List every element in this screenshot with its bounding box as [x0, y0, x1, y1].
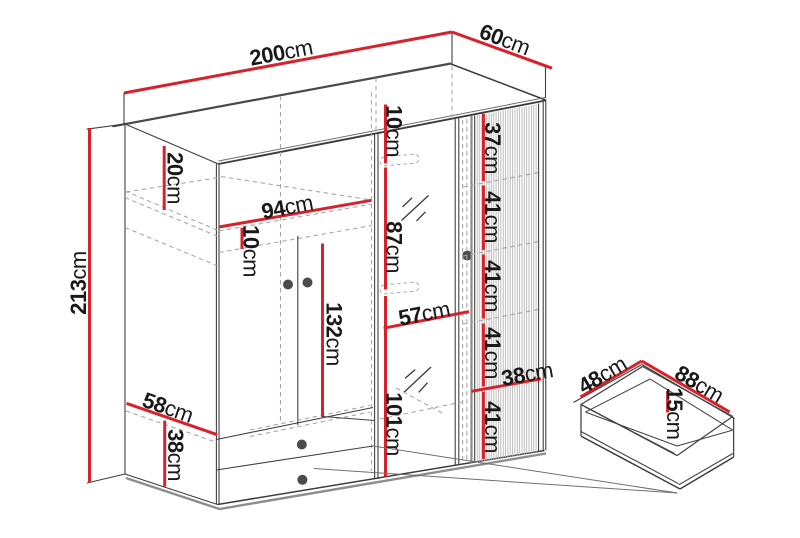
svg-text:41cm: 41cm	[480, 260, 505, 312]
svg-text:38cm: 38cm	[164, 429, 189, 481]
svg-text:37cm: 37cm	[480, 122, 505, 174]
svg-text:132cm: 132cm	[322, 302, 347, 366]
svg-text:10cm: 10cm	[382, 105, 407, 157]
svg-text:41cm: 41cm	[480, 191, 505, 243]
svg-text:87cm: 87cm	[382, 221, 407, 273]
svg-text:101cm: 101cm	[382, 392, 407, 456]
svg-text:213cm: 213cm	[66, 251, 91, 315]
svg-text:10cm: 10cm	[239, 225, 264, 277]
svg-text:15cm: 15cm	[663, 388, 688, 440]
svg-text:41cm: 41cm	[480, 401, 505, 453]
svg-text:20cm: 20cm	[163, 152, 188, 204]
